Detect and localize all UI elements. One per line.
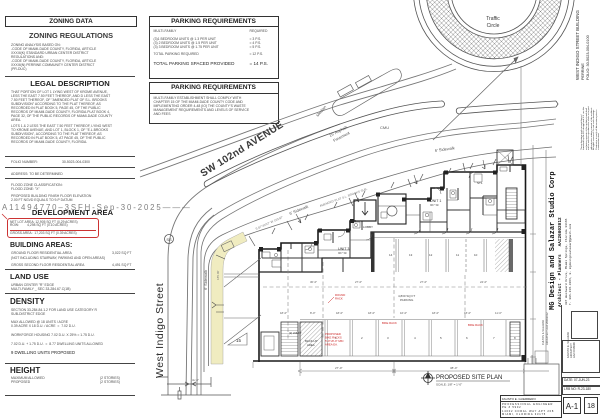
- svg-text:CMU: CMU: [380, 125, 389, 130]
- svg-text:14: 14: [389, 253, 393, 257]
- svg-text:3: 3: [387, 336, 389, 340]
- svg-text:7: 7: [493, 336, 495, 340]
- svg-text:18'-0": 18'-0": [336, 311, 343, 315]
- svg-text:FULTON & SALAZAR: FULTON & SALAZAR: [541, 320, 545, 345]
- svg-text:11'-0": 11'-0": [495, 311, 502, 315]
- svg-text:967 SF: 967 SF: [338, 251, 347, 255]
- svg-text:(2) LML FT: (2) LML FT: [289, 331, 302, 335]
- svg-text:BIKE RACK: BIKE RACK: [382, 321, 397, 325]
- svg-text:27'-0": 27'-0": [335, 366, 343, 370]
- svg-text:967 SF: 967 SF: [430, 203, 439, 207]
- svg-text:4: 4: [414, 336, 416, 340]
- svg-text:185.00': 185.00': [216, 270, 220, 280]
- svg-text:6' Sidewalk: 6' Sidewalk: [434, 145, 455, 153]
- svg-text:27'-0": 27'-0": [355, 280, 362, 284]
- svg-text:30'-0": 30'-0": [310, 280, 317, 284]
- svg-text:18'-0": 18'-0": [464, 311, 471, 315]
- svg-text:SS: SS: [166, 237, 172, 242]
- svg-text:West Indigo Street: West Indigo Street: [154, 283, 166, 378]
- svg-text:PARKING: PARKING: [400, 298, 414, 302]
- svg-text:18'-0": 18'-0": [432, 311, 439, 315]
- svg-text:6' Sidewalk: 6' Sidewalk: [203, 270, 208, 290]
- svg-text:13: 13: [409, 253, 413, 257]
- svg-text:15: 15: [236, 338, 242, 343]
- svg-text:5: 5: [440, 336, 442, 340]
- svg-text:PROPOSED SITE PLAN: PROPOSED SITE PLAN: [436, 375, 502, 381]
- svg-text:18'-0": 18'-0": [368, 311, 375, 315]
- svg-text:Traffic: Traffic: [486, 16, 500, 22]
- svg-text:RACK: RACK: [335, 297, 343, 301]
- svg-text:16'-0": 16'-0": [400, 311, 407, 315]
- svg-text:AREA: AREA: [307, 343, 315, 347]
- svg-text:ARCHITECT AA# 26002012: ARCHITECT AA# 26002012: [545, 312, 549, 345]
- svg-text:4x'-0": 4x'-0": [192, 378, 199, 382]
- svg-text:AREA EA.: AREA EA.: [325, 343, 338, 347]
- svg-text:11: 11: [456, 253, 459, 257]
- svg-text:BIKE RACK: BIKE RACK: [468, 323, 483, 327]
- svg-text:12: 12: [429, 253, 433, 257]
- svg-text:27'-0": 27'-0": [420, 280, 427, 284]
- svg-text:LOBBY: LOBBY: [363, 225, 373, 229]
- svg-text:6: 6: [466, 336, 468, 340]
- svg-text:S 87°40'07" W 103.87': S 87°40'07" W 103.87': [255, 215, 284, 231]
- svg-text:STL: STL: [477, 181, 483, 185]
- svg-text:10: 10: [474, 253, 478, 257]
- svg-text:24'-0": 24'-0": [480, 280, 487, 284]
- svg-text:Circle: Circle: [487, 23, 500, 29]
- svg-text:38'-0": 38'-0": [450, 366, 458, 370]
- svg-text:SCALE: 1/8" = 1'-0": SCALE: 1/8" = 1'-0": [436, 383, 462, 387]
- svg-text:8'-0": 8'-0": [310, 311, 316, 315]
- svg-text:18'-0": 18'-0": [280, 311, 287, 315]
- svg-text:2: 2: [361, 336, 363, 340]
